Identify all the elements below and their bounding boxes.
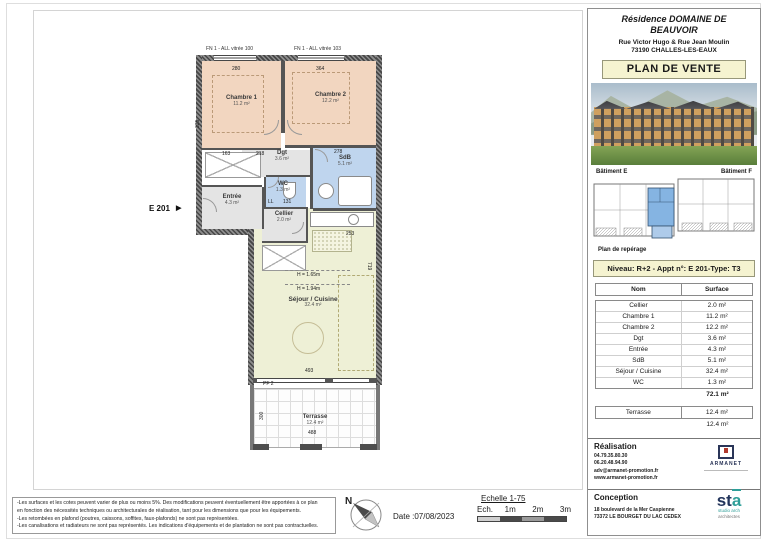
conception-section: Conception 18 boulevard de la Mer Caspie… [588,489,760,524]
window [298,55,344,61]
address-line1: Rue Victor Hugo & Rue Jean Moulin [588,39,760,47]
col-nom: Nom [596,284,682,295]
residence-title: Résidence DOMAINE DE BEAUVOIR [588,14,760,36]
scale-prefix: Ech. [477,505,505,514]
disclaimer-line: en fonction des nécessités techniques ou… [17,508,331,516]
dining-table [292,322,324,354]
bay-window [333,378,369,383]
phone-number: 04.79.35.80.30 [594,453,658,461]
table-row: Chambre 212.2 m² [596,323,752,334]
table-row: Séjour / Cuisine32.4 m² [596,367,752,378]
room-label-chambre2: Chambre 2 12.2 m² [285,92,376,105]
partition-wall [306,207,308,241]
reperage-caption: Plan de repérage [588,246,760,253]
window-label: FN 1 - ALL vitrée 103 [294,46,341,52]
disclaimer-line: -Les retombées en plafond (poutres, cais… [17,516,331,524]
plan-de-vente-page: FN 1 - ALL vitrée 100 FN 1 - ALL vitrée … [0,0,768,543]
partition-wall [262,241,308,243]
wall [248,229,254,385]
surface-total: 72.1 m² [682,389,753,400]
realisation-title: Réalisation [594,442,658,451]
conception-address: 18 boulevard de la Mer Caspienne 73372 L… [594,507,681,522]
dimension: 131 [283,199,291,205]
window-label: FN 1 - ALL vitrée 100 [206,46,253,52]
partition-wall [285,145,376,148]
realisation-details: 04.79.35.80.30 06.20.48.94.90 adv@armane… [594,453,658,483]
date-label: Date :07/08/2023 [393,512,454,521]
address-line: 18 boulevard de la Mer Caspienne [594,507,681,515]
north-label: N [345,496,352,507]
table-row: Chambre 111.2 m² [596,312,752,323]
dimension: 278 [334,149,342,155]
surface-table-header: Nom Surface [595,283,753,296]
height-label: H = 1.94m [297,286,320,292]
scale-title: Echelle 1-75 [481,494,525,503]
closet [205,152,261,178]
wall [376,55,382,385]
partition-wall [313,208,376,211]
partition-wall [262,207,308,209]
wall [196,229,254,235]
info-panel: Résidence DOMAINE DE BEAUVOIR Rue Victor… [587,8,761,536]
terrasse-row: Terrasse 12.4 m² [595,406,753,419]
washbasin [318,183,334,199]
sta-logo: sta studio arch architectes [704,493,754,522]
terrace-post [360,444,377,450]
terrasse-total: 12.4 m² [682,419,753,430]
unit-entry-arrow: ▶ [176,204,181,212]
scale-tick: 1m [505,505,533,514]
room-label-terrasse: Terrasse 12.4 m² [273,414,357,427]
armanet-logo: ARMANET [698,442,754,483]
batiment-e-label: Bâtiment E [596,169,627,175]
dimension: 218 [256,151,264,157]
phone-number: 06.20.48.94.90 [594,460,658,468]
disclaimer-line: -Les surfaces et les cotes peuvent varie… [17,500,331,508]
reperage-plan [590,176,758,246]
terrace-post [300,444,322,450]
height-line [285,284,350,285]
dimension: 163 [222,151,230,157]
realisation-section: Réalisation 04.79.35.80.30 06.20.48.94.9… [588,438,760,485]
address-line: 73372 LE BOURGET DU LAC CEDEX [594,514,681,522]
email-address: adv@armanet-promotion.fr [594,468,658,476]
wall [250,385,254,450]
furniture-outline [338,275,374,371]
wall [376,385,380,450]
conception-title: Conception [594,493,681,502]
dimension: LL [268,199,274,205]
room-label-sejour: Séjour / Cuisine 32.4 m² [263,296,363,309]
scale-bar [477,516,567,522]
kitchen-sink [348,214,359,225]
room-label-wc: WC 1.3 m² [266,181,300,194]
dimension: 253 [346,231,354,237]
panel-header: Résidence DOMAINE DE BEAUVOIR Rue Victor… [588,9,760,79]
room-label-cellier: Cellier 2.0 m² [262,211,306,224]
dimension: 280 [232,66,240,72]
dimension: 325 [195,120,201,128]
building-photo [591,83,757,165]
building-render [594,107,754,147]
address-line2: 73190 CHALLES-LES-EAUX [588,47,760,55]
closet [262,245,306,271]
window [214,55,256,61]
bathtub [338,176,372,206]
room-label-chambre1: Chambre 1 11.2 m² [202,95,281,108]
dimension: 488 [308,430,316,436]
scale-ticks: Ech. 1m 2m 3m [477,505,571,514]
armanet-logo-rule [704,470,748,471]
lawn [591,146,757,165]
disclaimer-box: -Les surfaces et les cotes peuvent varie… [12,497,336,534]
terrace-post [253,444,269,450]
website-url: www.armanet-promotion.fr [594,475,658,483]
dimension: 493 [305,368,313,374]
surface-table: Nom Surface Cellier2.0 m² Chambre 111.2 … [595,283,753,430]
kitchen-counter [310,212,374,227]
realisation-info: Réalisation 04.79.35.80.30 06.20.48.94.9… [594,442,658,483]
wall [196,55,202,235]
room-label-sdb: SdB 5.1 m² [322,155,368,168]
room-label-entree: Entrée 4.3 m² [206,194,258,207]
partition-wall [310,148,313,209]
armanet-logo-mark [718,445,734,459]
height-line [285,270,350,271]
residence-address: Rue Victor Hugo & Rue Jean Moulin 73190 … [588,39,760,55]
height-label: H = 1.65m [297,272,320,278]
table-row: Entrée4.3 m² [596,345,752,356]
dimension: 719 [366,262,372,270]
surface-table-body: Cellier2.0 m² Chambre 111.2 m² Chambre 2… [595,300,753,389]
unit-number-label: E 201 [149,204,170,213]
dimension: 364 [316,66,324,72]
apartment-info-banner: Niveau: R+2 - Appt n°: E 201-Type: T3 [593,260,755,277]
armanet-logo-text: ARMANET [698,461,754,467]
north-compass-icon: N [344,492,386,534]
dimension: PF 2 [263,381,274,387]
partition-wall [202,185,262,187]
residence-title-line1: Résidence DOMAINE DE [588,14,760,25]
room-label-dgt: Dgt 3.6 m² [262,150,302,163]
table-row: WC1.3 m² [596,378,752,388]
residence-title-line2: BEAUVOIR [588,25,760,36]
disclaimer-line: -Les canalisations et radiateurs ne sont… [17,523,331,531]
batiment-f-label: Bâtiment F [721,169,752,175]
col-surface: Surface [682,284,752,295]
dimension: 300 [259,412,265,420]
sta-logo-text: sta [704,493,754,508]
scale-tick: 2m [532,505,560,514]
conception-info: Conception 18 boulevard de la Mer Caspie… [594,493,681,522]
batiment-labels: Bâtiment E Bâtiment F [588,165,760,176]
plan-de-vente-banner: PLAN DE VENTE [602,60,746,79]
table-row: Dgt3.6 m² [596,334,752,345]
scale-tick: 3m [560,505,571,514]
sta-logo-sub2: architectes [704,514,754,519]
table-row: Cellier2.0 m² [596,301,752,312]
table-row: SdB5.1 m² [596,356,752,367]
